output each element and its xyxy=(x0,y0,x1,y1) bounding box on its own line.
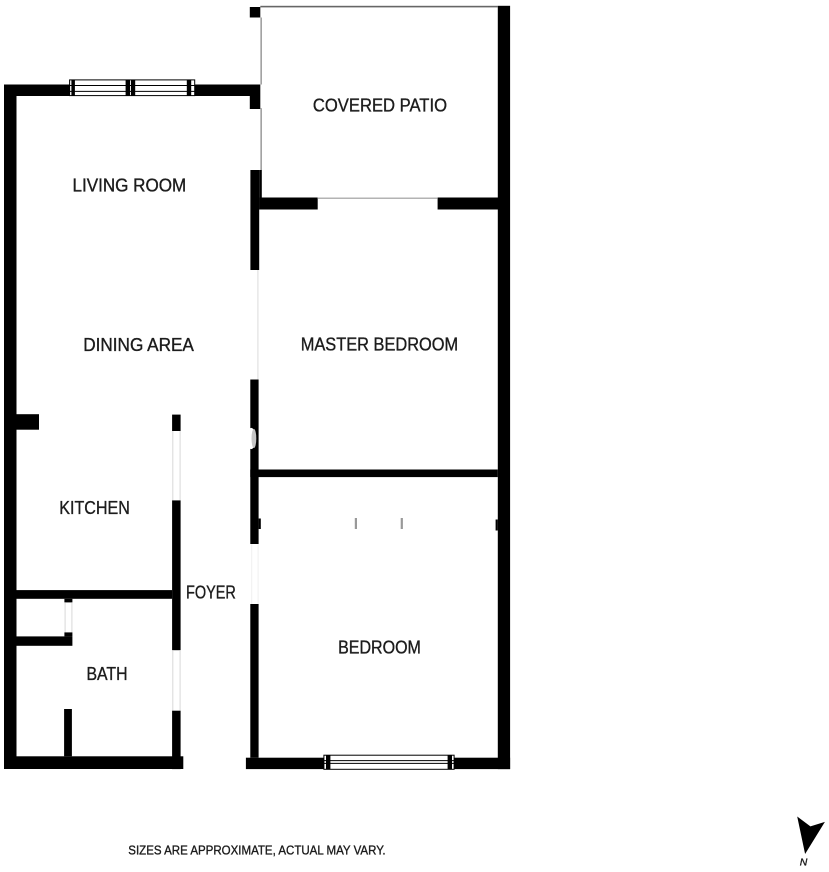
svg-text:DINING AREA: DINING AREA xyxy=(83,335,195,355)
svg-text:FOYER: FOYER xyxy=(186,583,236,603)
svg-text:BATH: BATH xyxy=(87,664,128,684)
svg-text:MASTER BEDROOM: MASTER BEDROOM xyxy=(301,334,459,354)
svg-text:SIZES ARE APPROXIMATE, ACTUAL: SIZES ARE APPROXIMATE, ACTUAL MAY VARY. xyxy=(128,843,385,858)
svg-text:LIVING ROOM: LIVING ROOM xyxy=(73,175,187,195)
svg-text:COVERED PATIO: COVERED PATIO xyxy=(313,96,447,116)
svg-text:N: N xyxy=(800,856,808,868)
svg-text:BEDROOM: BEDROOM xyxy=(338,638,421,658)
svg-text:KITCHEN: KITCHEN xyxy=(59,498,130,518)
